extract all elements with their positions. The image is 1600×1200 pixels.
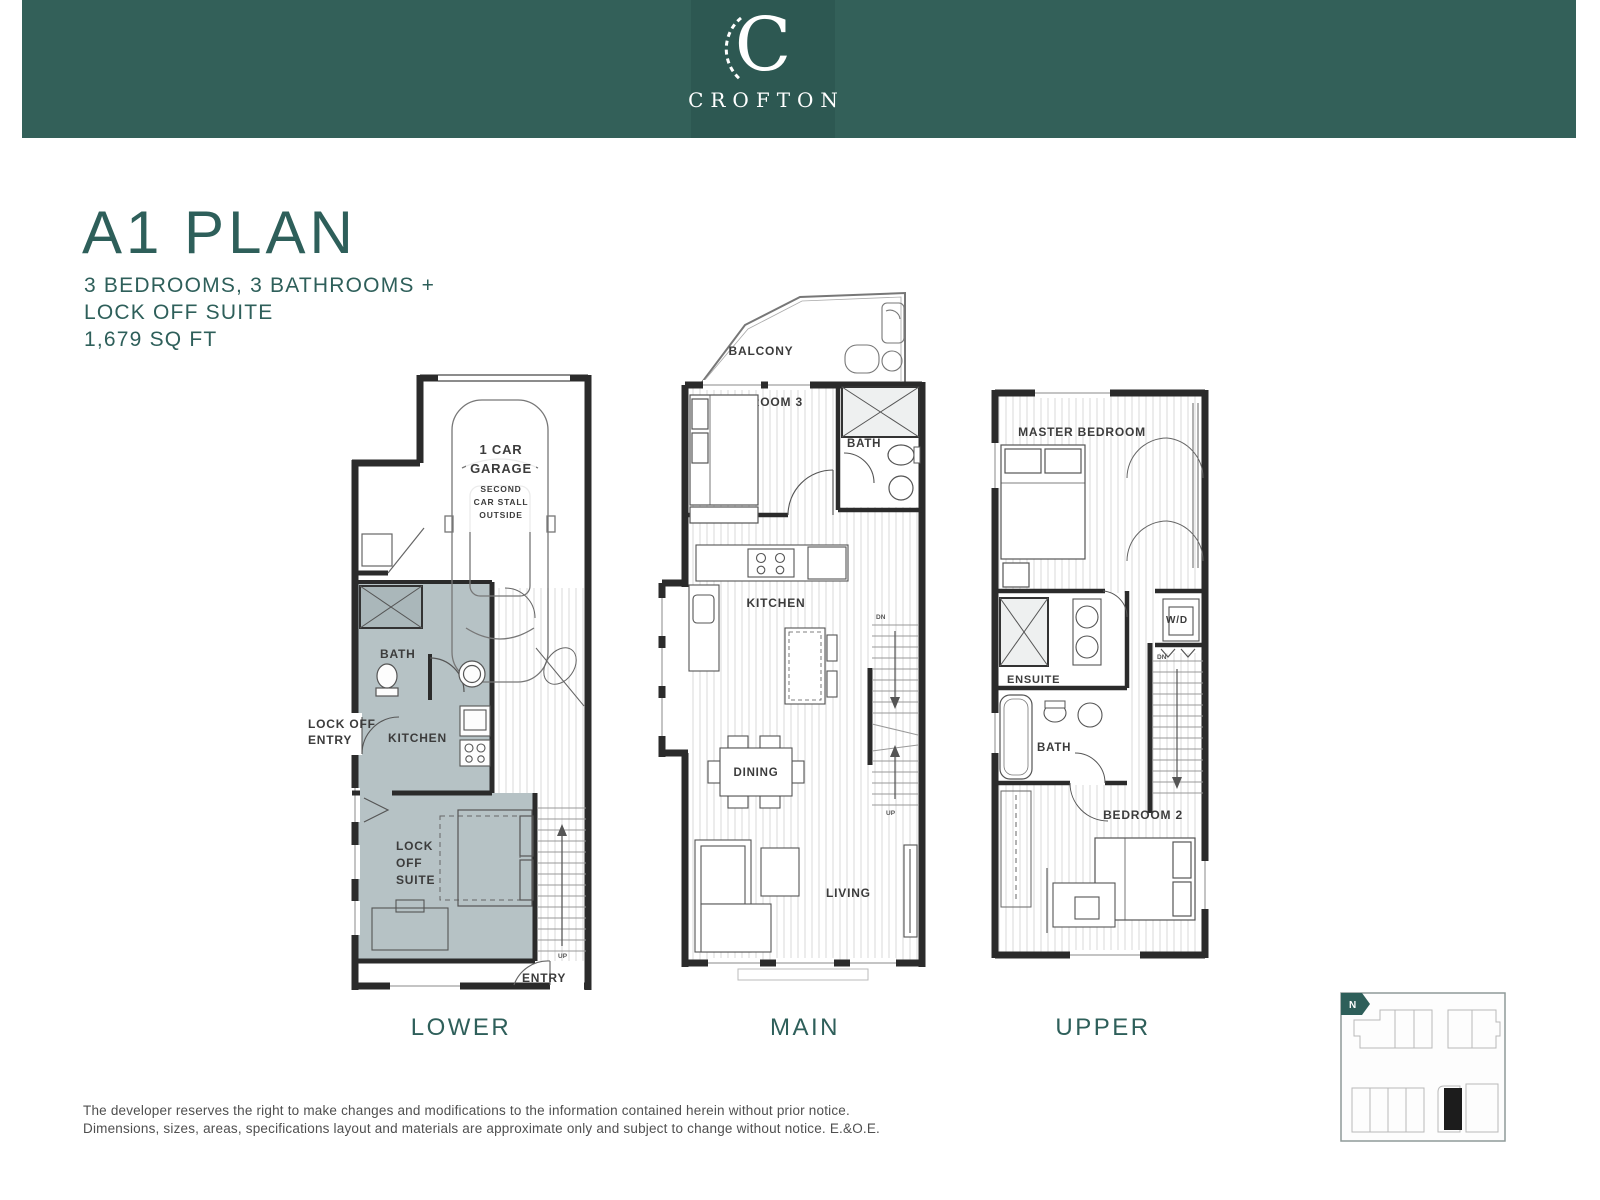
ensuite-label: ENSUITE — [1007, 674, 1060, 686]
bath-label: BATH — [380, 647, 416, 661]
plan-subtitle: 3 BEDROOMS, 3 BATHROOMS + LOCK OFF SUITE… — [84, 272, 435, 353]
dn-label: DN — [1157, 654, 1167, 661]
kitchen-label: KITCHEN — [388, 731, 447, 745]
lockoff-entry-label-2: ENTRY — [308, 733, 352, 747]
plan-title: A1 PLAN — [82, 198, 357, 267]
dining-label: DINING — [733, 767, 778, 779]
main-floor-plan: BALCONY — [648, 283, 928, 983]
porch — [738, 969, 868, 980]
balcony — [700, 293, 905, 385]
wd-label: W/D — [1166, 615, 1188, 626]
disclaimer-line-2: Dimensions, sizes, areas, specifications… — [83, 1120, 880, 1138]
disclaimer: The developer reserves the right to make… — [83, 1102, 880, 1138]
kitchen-label: KITCHEN — [747, 596, 806, 610]
garage-sub-2: CAR STALL — [474, 497, 529, 507]
shower — [360, 586, 422, 628]
sink — [459, 661, 485, 687]
subtitle-line-2: LOCK OFF SUITE — [84, 299, 435, 326]
subtitle-line-1: 3 BEDROOMS, 3 BATHROOMS + — [84, 272, 435, 299]
logo-c-icon: C — [735, 8, 792, 82]
living-label: LIVING — [826, 886, 871, 900]
main-floor-label: MAIN — [685, 1014, 925, 1042]
laurel-icon — [721, 6, 791, 90]
suite-label-3: SUITE — [396, 873, 435, 887]
garage-label-2: GARAGE — [470, 461, 532, 476]
subtitle-line-3: 1,679 SQ FT — [84, 326, 435, 353]
lower-floor-plan: 1 CAR GARAGE SECOND CAR STALL OUTSIDE BA… — [300, 358, 600, 1006]
up-label: UP — [886, 810, 896, 817]
up-label: UP — [558, 953, 568, 960]
bath-label: BATH — [847, 438, 881, 450]
suite-label-1: LOCK — [396, 839, 433, 853]
toilet — [376, 664, 398, 696]
lower-floor-label: LOWER — [341, 1014, 581, 1042]
entry-label: ENTRY — [522, 971, 566, 985]
balcony-label: BALCONY — [729, 344, 794, 358]
brand-name: CROFTON — [681, 88, 845, 112]
garage-label-1: 1 CAR — [479, 442, 522, 457]
bath-label: BATH — [1037, 742, 1071, 754]
garage-sub-3: OUTSIDE — [479, 510, 522, 520]
keyplan-unit-highlight — [1444, 1088, 1462, 1130]
disclaimer-line-1: The developer reserves the right to make… — [83, 1102, 880, 1120]
master-label: MASTER BEDROOM — [1018, 425, 1146, 439]
dn-label: DN — [876, 614, 886, 621]
north-label: N — [1349, 1000, 1356, 1011]
upper-floor-label: UPPER — [983, 1014, 1223, 1042]
bedroom2-label: BEDROOM 2 — [1103, 808, 1183, 822]
crofton-logo: C CROFTON — [691, 0, 835, 138]
kitchen-counter — [460, 706, 490, 766]
entry-closet — [362, 528, 424, 573]
suite-label-2: OFF — [396, 856, 422, 870]
bedroom3-bed — [690, 395, 758, 523]
floorplan-page: C CROFTON A1 PLAN 3 BEDROOMS, 3 BATHROOM… — [0, 0, 1600, 1200]
lockoff-entry-label-1: LOCK OFF — [308, 717, 376, 731]
site-keyplan: N — [1340, 992, 1506, 1142]
upper-floor-plan: MASTER BEDROOM W/D — [975, 383, 1225, 975]
garage-sub-1: SECOND — [480, 484, 521, 494]
